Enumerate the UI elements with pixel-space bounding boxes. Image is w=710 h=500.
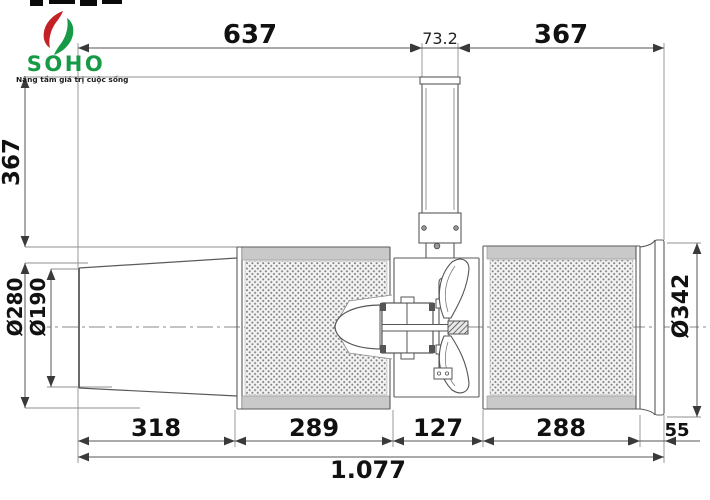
dim-289: 289 (289, 414, 339, 442)
dim-1077-total: 1.077 (330, 456, 406, 484)
right-silencer-perforation (490, 260, 633, 395)
dim-367-top: 367 (534, 20, 588, 50)
soho-wordmark: SOHO (16, 54, 116, 75)
dim-127: 127 (413, 414, 463, 442)
blade-root-plate (434, 368, 452, 379)
support-bracket (419, 77, 461, 258)
soho-tagline: Nâng tầm giá trị cuộc sống (16, 75, 120, 84)
dim-dia-190: Ø190 (26, 278, 50, 337)
impeller-blade-top (439, 259, 469, 318)
right-silencer-lining-bottom (487, 396, 636, 409)
outlet-flange (640, 240, 664, 415)
right-silencer-lining-top (487, 246, 636, 259)
shaft-coupling (448, 321, 468, 334)
left-silencer-lining-top (242, 247, 390, 260)
left-silencer-lining-bottom (242, 396, 390, 409)
dim-dia-342: Ø342 (669, 274, 694, 339)
dim-73-2: 73.2 (422, 29, 458, 48)
dim-318: 318 (131, 414, 181, 442)
soho-logo: SOHO Nâng tầm giá trị cuộc sống (12, 4, 122, 90)
soho-swirl-icon (36, 8, 82, 58)
dim-637: 637 (223, 20, 277, 50)
dim-dia-280: Ø280 (3, 278, 27, 337)
dim-367-left: 367 (0, 138, 25, 186)
dim-288: 288 (536, 414, 586, 442)
dim-55: 55 (664, 420, 689, 441)
